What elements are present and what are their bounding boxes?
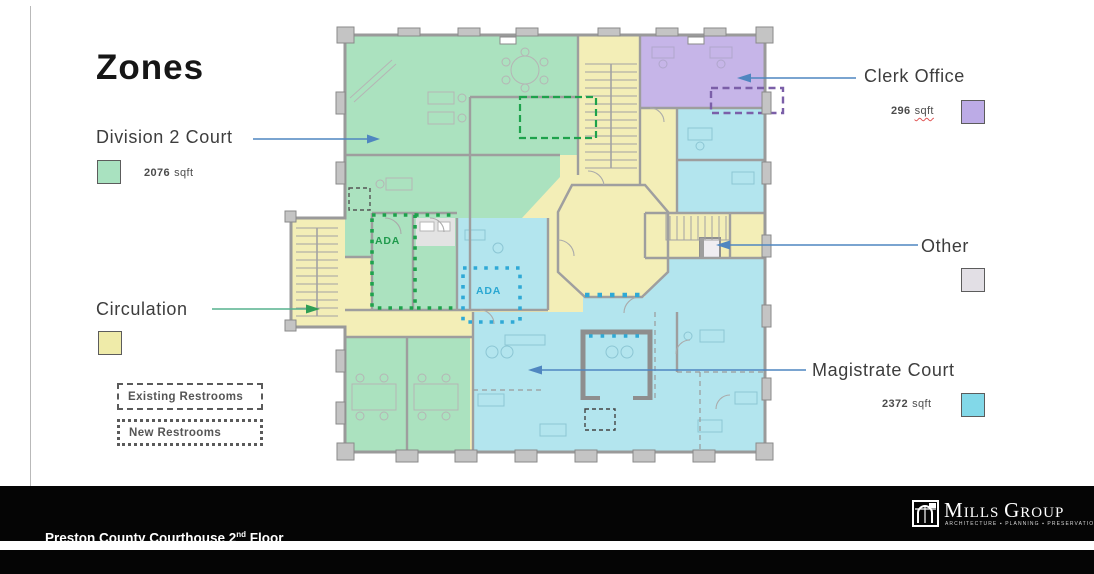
logo-g: G bbox=[1004, 498, 1020, 522]
area-magistrate-unit: sqft bbox=[912, 398, 931, 410]
mills-group-logo: MILLS GROUP ARCHITECTURE ▪ PLANNING ▪ PR… bbox=[912, 498, 1072, 534]
area-magistrate-value: 2372 bbox=[882, 398, 908, 410]
swatch-circulation bbox=[98, 331, 122, 355]
octagon-lobby bbox=[558, 185, 668, 297]
area-magistrate: 2372sqft bbox=[882, 398, 931, 410]
footer-title-prefix: Preston County Courthouse 2 bbox=[45, 531, 236, 546]
footer-title-suffix: Floor bbox=[246, 531, 284, 546]
slide: Zones Division 2 Court 2076sqft Circulat… bbox=[0, 0, 1094, 574]
mills-group-tagline: ARCHITECTURE ▪ PLANNING ▪ PRESERVATION bbox=[945, 521, 1094, 527]
legend-existing-restrooms-label: Existing Restrooms bbox=[128, 391, 243, 403]
label-circulation: Circulation bbox=[96, 299, 188, 320]
area-division2-unit: sqft bbox=[174, 167, 193, 179]
legend-new-restrooms-label: New Restrooms bbox=[129, 427, 221, 439]
legend-existing-restrooms: Existing Restrooms bbox=[117, 383, 263, 410]
label-magistrate-court: Magistrate Court bbox=[812, 360, 955, 381]
ada-label-division: ADA bbox=[375, 235, 400, 247]
swatch-other bbox=[961, 268, 985, 292]
swatch-clerk-office bbox=[961, 100, 985, 124]
area-division2-value: 2076 bbox=[144, 167, 170, 179]
area-clerk-office: 296sqft bbox=[891, 105, 934, 117]
ada-label-magistrate: ADA bbox=[476, 285, 501, 297]
swatch-division2 bbox=[97, 160, 121, 184]
slide-edge-line bbox=[30, 6, 31, 486]
logo-ills: ILLS bbox=[964, 505, 1004, 521]
footer-title-ordinal: nd bbox=[236, 530, 246, 539]
page-title: Zones bbox=[96, 48, 204, 88]
zone-clerk-office bbox=[640, 35, 765, 108]
area-division2: 2076sqft bbox=[144, 167, 193, 179]
area-clerk-value: 296 bbox=[891, 105, 911, 117]
label-division2-court: Division 2 Court bbox=[96, 127, 233, 148]
logo-roup: ROUP bbox=[1020, 505, 1064, 521]
mills-group-wordmark: MILLS GROUP bbox=[944, 498, 1064, 523]
elevator-door bbox=[700, 238, 704, 258]
area-clerk-unit: sqft bbox=[915, 105, 934, 117]
logo-m: M bbox=[944, 498, 964, 522]
mills-group-logo-icon bbox=[912, 500, 939, 527]
legend-new-restrooms: New Restrooms bbox=[117, 419, 263, 446]
footer-bottom-strip bbox=[0, 550, 1094, 574]
label-other: Other bbox=[921, 236, 969, 257]
footer-title: Preston County Courthouse 2nd Floor bbox=[45, 527, 284, 547]
swatch-magistrate bbox=[961, 393, 985, 417]
label-clerk-office: Clerk Office bbox=[864, 66, 965, 87]
